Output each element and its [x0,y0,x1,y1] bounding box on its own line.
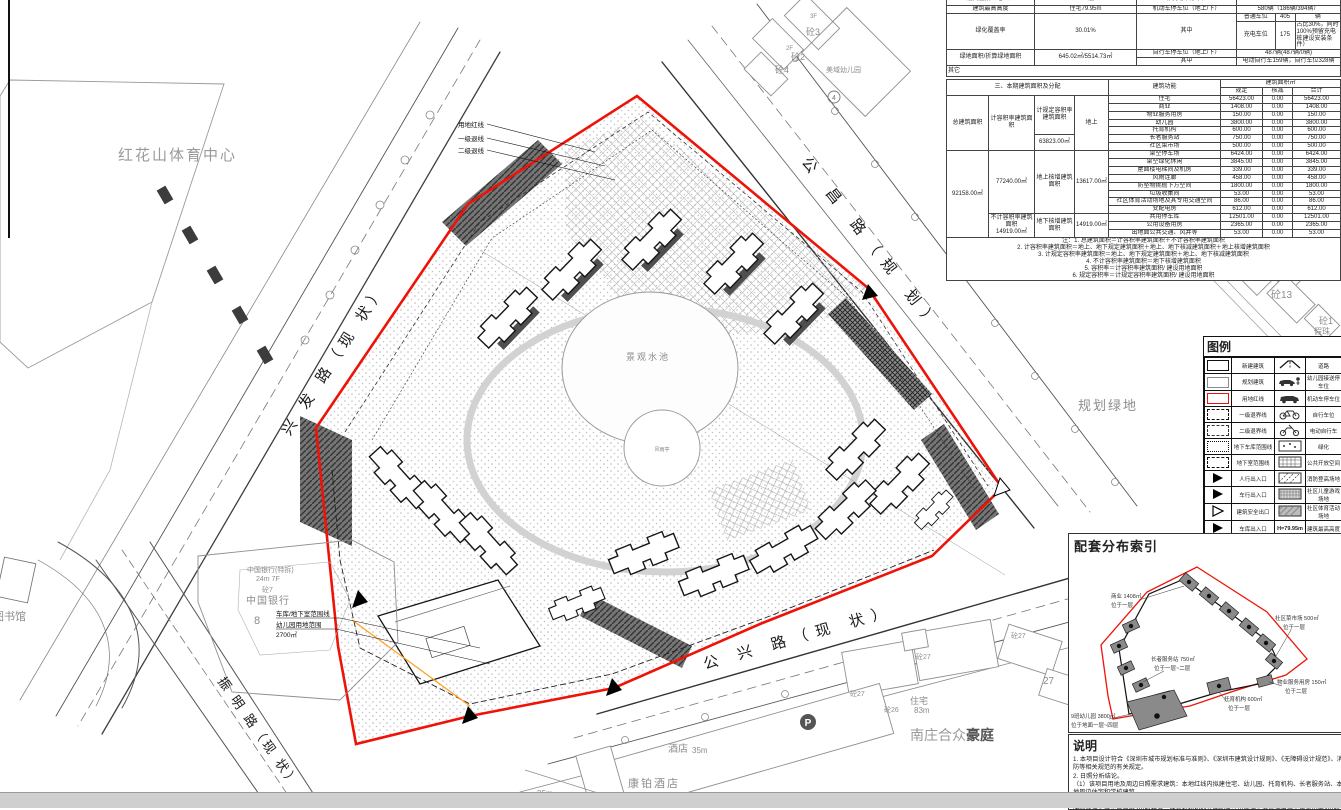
t3-label: 砼3 [806,26,820,37]
legend-row: 用地红线 机动车停车位 [1205,391,1341,407]
pavilion-label: 风雨亭 [654,446,669,453]
pedestrian-entrance-symbol [1211,472,1225,484]
site-info-table: 最大层数（地上） 23/7层 非机动车停车位 — 建筑最高高度 住宅79.95m… [946,0,1341,77]
legend-title: 图例 [1204,337,1341,357]
site-plan-sheet: { "colors":{"red_line":"#ee1308","new_bu… [0,0,1341,807]
setback2-symbol [1207,425,1229,436]
garage-entrance-symbol [1211,522,1225,534]
cell: 其中 [1137,13,1237,49]
t27-label-a: 砼27 [850,689,865,698]
cell: 核减 [1263,88,1293,96]
inset-label-shangye: 商业 1408㎡ [1111,592,1142,600]
kindergarten-pickup-icon [1278,375,1302,387]
sports-ground-icon [1278,505,1302,517]
planned-building-symbol [1207,377,1229,388]
open-space-icon [1278,456,1302,468]
note-line: 1. 本项目设计符合《深圳市城市规划标准与准则》、《深圳市建筑设计规则》、《无障… [1073,756,1341,773]
cell: 地上核增建筑面积 [1035,151,1075,214]
bank-demolish-label: 中国银行(特拆) [247,565,294,574]
greenery-icon [1278,440,1302,452]
cell: 自行车停车位（地上/下） [1137,50,1237,58]
legend-panel: 图例 新建建筑 道路 规划建筑 幼儿园接送停车位 用地红线 机动车停车位 一级退… [1203,336,1341,538]
zhuzhai-label: 住宅 [910,695,928,706]
note-line: 6. 规定容积率＝计规定容积率建筑面积/ 建设用地面积 [948,273,1339,280]
cell: 普通车位 [1237,14,1275,21]
cell: 13617.00㎡ [1075,151,1109,214]
sheet-bottom-strip [0,792,1341,808]
note-line: 2. 计容积率建筑面积＝地上、地下规定建筑面积＋地上、地下核减建筑面积＋地上核增… [948,245,1339,252]
car-parking-icon [1278,392,1302,404]
legend-row: 新建建筑 道路 [1205,358,1341,374]
inset-title: 配套分布索引 [1074,536,1158,555]
inset-label-caishichang-floor: 位于一层 [1283,623,1306,631]
cell: 580辆（186辆/394辆） [1237,6,1341,14]
cell: 175 [1275,21,1295,49]
table-row: 绿地面积/折算绿地面积 645.02㎡/5514.73㎡ 自行车停车位（地上/下… [947,50,1341,58]
cell: 56423.00 [1293,95,1341,103]
cell: 645.02㎡/5514.73㎡ [1035,50,1137,66]
sports-center-label: 红花山体育中心 [118,147,237,164]
note-line: 5. 容积率＝计容积率建筑面积/ 建设用地面积 [948,266,1339,273]
parking-p: P [805,718,812,729]
t2-label: 砼2 [791,51,805,62]
garage-outline-symbol [1207,441,1229,452]
cell: 77240.00㎡ [989,151,1035,214]
cell: 建筑最高高度 [947,6,1035,14]
vehicle-entrance-symbol [1211,488,1225,500]
cell: 56423.00 [1221,95,1263,103]
jz-label: 假珠 [1314,326,1330,336]
cell: 487辆(487辆/0辆) [1237,50,1341,58]
red-line-symbol [1207,393,1229,404]
circle4-label: 4 [832,95,836,102]
kg-site-label: 幼儿园用地范围 [276,620,322,629]
bank-t7-label: 砼7 [262,585,273,594]
cell: 住宅79.95m [1035,6,1137,14]
basement-outline-symbol [1207,457,1229,468]
cell: 405 [1275,14,1295,21]
h83-label: 83m [914,706,930,715]
note-line: 2. 日照分析结论。 [1073,773,1341,781]
area-allocation-table: 三、本期建筑面积及分配 建筑功能 建筑面积㎡ 规定 核减 合计 总建筑面积 计容… [946,79,1341,281]
cell: 计规定容积率建筑面积 [1035,95,1075,134]
cell: 绿地面积/折算绿地面积 [947,50,1035,66]
inset-label-kindergarten-floor: 位于地面一层~四层 [1071,721,1119,729]
library-label: 图书馆 [0,609,26,623]
notes-title: 说明 [1073,737,1341,754]
table-notes: 注：1. 总建筑面积＝计容积率建筑面积＋不计容积率建筑面积 2. 计容积率建筑面… [947,237,1341,280]
project-data-tables: 最大层数（地上） 23/7层 非机动车停车位 — 建筑最高高度 住宅79.95m… [946,0,1341,281]
cell: 计容积率建筑面积 [989,95,1035,150]
pond-label: 景观水池 [626,351,670,362]
cell: 绿化覆盖率 [947,13,1035,49]
note-line: 3. 计规定容积率建筑面积＝地上、地下规定建筑面积＋地上、地下核减建筑面积 [948,252,1339,259]
table-row: 建筑最高高度 住宅79.95m 机动车停车位（地上/下） 580辆（186辆/3… [947,6,1341,14]
cell: 地上 [1075,95,1109,150]
table-row: 总建筑面积 计容积率建筑面积 计规定容积率建筑面积 地上 住宅 56423.00… [947,95,1341,103]
cell: 建筑面积㎡ [1221,80,1341,88]
meiyu-kg-label: 美域幼儿园 [826,65,861,74]
bank-8-label: 8 [254,615,260,627]
facilities-index-panel: 商业 1408㎡ 位于一层 社区菜市场 500㎡ 位于一层 长者服务站 750㎡… [1068,533,1341,733]
cell: 合计 [1293,88,1341,96]
inset-label-kindergarten: 9班幼儿园 3800㎡ [1071,712,1116,720]
table-row: 不计容积率建筑面积14919.00㎡ 地下核增建筑面积 14919.00㎡ 共用… [947,214,1341,222]
bicycle-icon [1278,408,1302,420]
table-row: 92158.00㎡ 77240.00㎡ 地上核增建筑面积 13617.00㎡ 架… [947,151,1341,159]
setback2-label: 二级退线 [458,146,485,155]
redline-label: 用地红线 [458,120,485,129]
t26-label: 砼26 [884,705,899,714]
legend-row: 建筑安全出口 社区体育活动场地 [1205,504,1341,521]
hotel-h-label: 35m [692,746,708,755]
t27-label-b: 砼27 [916,652,931,661]
legend-row: 一级退界线 自行车位 [1205,407,1341,423]
cell: 总建筑面积 [947,95,989,150]
bank-height-label: 24m 7F [256,576,280,583]
ebike-icon [1278,424,1302,436]
legend-row: 二级退界线 电动自行车 [1205,423,1341,439]
note-line: 注：1. 总建筑面积＝计容积率建筑面积＋不计容积率建筑面积 [948,238,1339,245]
cell: 电动自行车159辆，自行车位328辆 [1237,58,1341,66]
cell: 充电车位 [1237,21,1275,49]
setback1-label: 一级退线 [458,134,485,143]
legend-row: 人行出入口 消防登高场地 [1205,471,1341,487]
green-area-label: 规划绿地 [1078,398,1138,413]
garage-line-label: 车库/地下室范围线 [276,609,330,618]
cell: 辆 [1295,14,1340,21]
table-row: 绿化覆盖率 30.01% 其中 普通车位 405 辆 充电车位 175 占比30… [947,13,1341,49]
cell: 92158.00㎡ [947,151,989,238]
inset-labels: 商业 1408㎡ 位于一层 社区菜市场 500㎡ 位于一层 长者服务站 750㎡… [1071,586,1327,729]
parking-symbol: P [800,714,816,730]
cell: 63823.00㎡ [1035,135,1075,151]
setback1-symbol [1207,409,1229,420]
cell: 其中 [1137,58,1237,66]
cell: 住宅 [1109,95,1221,103]
road-icon [1278,359,1302,370]
road-zhenming-label: 振 明 路（现 状） [215,674,303,791]
cell: 14919.00㎡ [1075,214,1109,238]
cell: 建筑功能 [1109,80,1221,96]
cell: 地下核增建筑面积 [1035,214,1075,238]
table-row: 其它 [947,66,1341,77]
inset-label-shangye-floor: 位于一层 [1111,601,1134,609]
cell: 机动车停车位（地上/下） [1137,6,1237,14]
inset-label-tuoyu-floor: 位于一层 [1228,704,1251,712]
inset-label-wuye-floor: 位于二层 [1285,687,1308,695]
legend-row: 地下室范围线 公共开放空间 [1205,455,1341,471]
t4-label: 砼4 [775,64,789,75]
cell: 0.00 [1263,95,1293,103]
table-row: 三、本期建筑面积及分配 建筑功能 建筑面积㎡ [947,80,1341,88]
safety-exit-symbol [1211,505,1225,517]
note-line: 4. 不计容积率建筑面积＝地下核增建筑面积 [948,259,1339,266]
nanzhuang-label: 南庄合众豪庭 [910,727,995,743]
table-row: 注：1. 总建筑面积＝计容积率建筑面积＋不计容积率建筑面积 2. 计容积率建筑面… [947,237,1341,280]
max-height-value: H=79.95m [1275,526,1305,532]
cell: 占比30%，同时100%预留充电桩建设安装条件） [1295,21,1340,49]
cell: 30.01% [1035,13,1137,49]
inset-label-zhangzhe: 长者服务站 750㎡ [1151,655,1195,663]
t27-label-c: 砼27 [1011,631,1026,640]
sheet-frame-left [8,0,10,238]
cell: 规定 [1221,88,1263,96]
hotel-label: 酒店 [668,742,688,755]
legend-row: 地下车库范围线 绿化 [1205,439,1341,455]
kg-area-label: 2700㎡ [276,630,297,639]
cell: 不计容积率建筑面积14919.00㎡ [989,214,1035,238]
inset-label-wuye: 物业服务用房 150㎡ [1277,678,1327,686]
inset-label-caishichang: 社区菜市场 500㎡ [1275,614,1319,622]
t1-label: 砼1 [1319,315,1333,326]
legend-row: 规划建筑 幼儿园接送停车位 [1205,374,1341,391]
cell: 三、本期建筑面积及分配 [947,80,1109,96]
cell: 其它 [947,66,1341,77]
inset-label-tuoyu: 托育机构 600㎡ [1224,695,1263,703]
facilities-index-map: 商业 1408㎡ 位于一层 社区菜市场 500㎡ 位于一层 长者服务站 750㎡… [1069,534,1341,732]
children-play-icon [1278,488,1302,500]
f3-label: 3F [810,14,817,20]
inset-label-zhangzhe-floor: 位于一层~二层 [1154,664,1191,672]
new-building-symbol [1207,360,1229,371]
n27-label: 27 [1043,676,1055,687]
legend-row: 车行出入口 社区儿童游戏场地 [1205,487,1341,504]
hotel2-label: 康铂酒店 [628,776,680,790]
cell: 普通车位 405 辆 充电车位 175 占比30%，同时100%预留充电桩建设安… [1237,13,1341,49]
fire-lane-icon [1278,472,1302,484]
t13-label: 砼13 [1271,288,1293,301]
bank-label: 中国银行 [246,594,290,607]
